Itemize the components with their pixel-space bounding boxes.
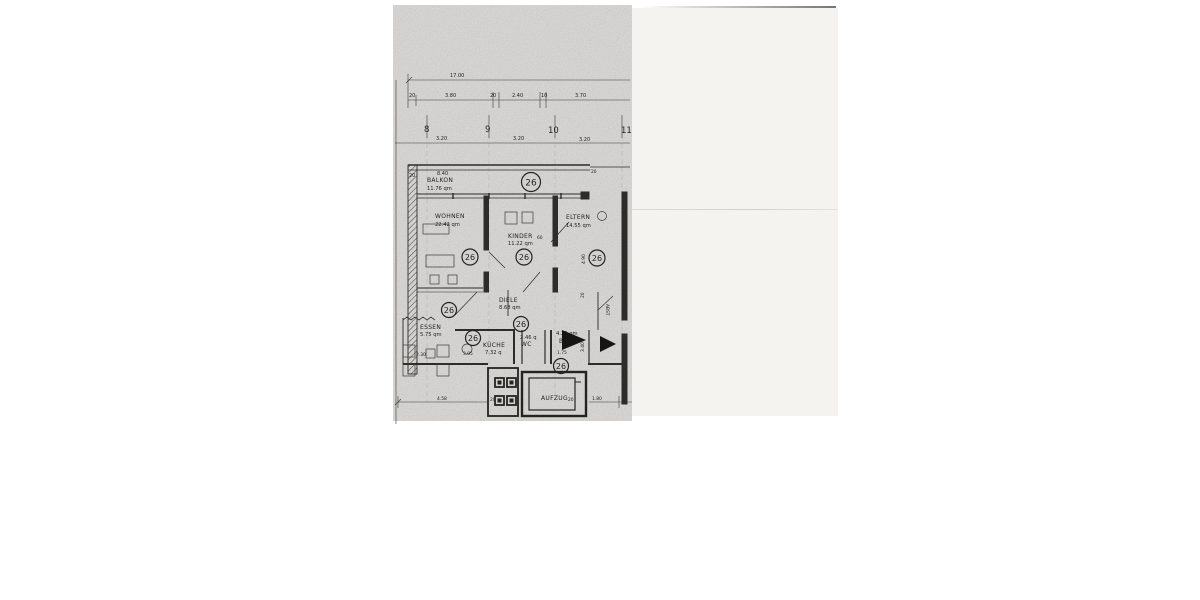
dim-bay-1: 3.20 xyxy=(436,136,447,142)
entrance-arrow-icon xyxy=(600,336,616,352)
room-area-eltern: 14.55 qm xyxy=(566,223,591,229)
lamp-icon xyxy=(598,212,607,221)
dim-bay-2: 3.20 xyxy=(513,136,524,142)
dim-20-b: 20 xyxy=(490,93,496,99)
unit-number-badge: 26 xyxy=(592,254,602,263)
unit-number-badge: 26 xyxy=(516,320,526,329)
unit-number-badge: 26 xyxy=(525,179,537,189)
dim-20-a: 20 xyxy=(409,93,415,99)
dim-total-width: 17.00 xyxy=(450,73,464,79)
dim-20-d: 20 xyxy=(568,397,574,403)
blank-paper-area xyxy=(632,8,838,416)
scanned-floorplan-page: { "plan": { "unit_number": "26", "rooms"… xyxy=(0,0,1200,600)
paper-fold-line xyxy=(632,209,838,210)
dim-20-balcony: 20 xyxy=(409,173,415,179)
room-label-wohnen: WOHNEN xyxy=(435,213,465,220)
shaft-room xyxy=(488,368,518,416)
room-label-wc: WC xyxy=(521,341,532,348)
unit-number-badge: 26 xyxy=(444,306,454,315)
room-label-aufzug: AUFZUG xyxy=(541,395,568,402)
room-area-balkon: 11.76 qm xyxy=(427,186,452,192)
floorplan-drawing: 17.00 20 3.80 20 2.40 10 3.70 8 9 10 11 … xyxy=(393,52,632,432)
room-labels: 20 8.40 20 BALKON 11.76 qm WOHNEN 22.42 … xyxy=(409,169,610,402)
dim-essen-width: 2.30 xyxy=(416,352,426,358)
dim-60: 60 xyxy=(537,235,543,241)
room-area-essen: 5.75 qm xyxy=(420,332,442,338)
unit-number-badge: 26 xyxy=(556,362,566,371)
room-label-abst: ABST xyxy=(604,304,610,316)
dim-abst-depth: 3.40 xyxy=(580,342,586,352)
room-label-balkon: BALKON xyxy=(427,177,453,184)
room-label-eltern: ELTERN xyxy=(566,214,590,221)
room-label-kueche: KÜCHE xyxy=(483,342,505,349)
furniture xyxy=(403,212,607,377)
room-area-kinder: 11.22 qm xyxy=(508,241,533,247)
room-label-kinder: KINDER xyxy=(508,233,533,240)
dim-2-40: 2.40 xyxy=(512,93,523,99)
dim-3-70: 3.70 xyxy=(575,93,586,99)
grid-label-9: 9 xyxy=(485,125,490,135)
room-label-essen: ESSEN xyxy=(420,324,441,331)
dimension-chain-top xyxy=(395,74,630,424)
dim-3-80: 3.80 xyxy=(445,93,456,99)
room-area-kueche: 7.32 q xyxy=(485,350,502,356)
unit-number-badge: 26 xyxy=(468,334,478,343)
dim-bay-3: 3.20 xyxy=(579,137,590,143)
unit-number-badge: 26 xyxy=(465,253,475,262)
dim-10: 10 xyxy=(541,93,547,99)
room-area-wohnen: 22.42 qm xyxy=(435,222,460,228)
dim-30: 30 xyxy=(621,400,627,406)
dim-bad-width: 1.75 xyxy=(557,350,567,356)
dim-lift-width: 1.80 xyxy=(592,396,602,402)
unit-number-badge: 26 xyxy=(519,253,529,262)
grid-label-11: 11 xyxy=(621,126,632,136)
dim-eltern-depth: 4.90 xyxy=(581,254,587,264)
room-label-diele: DIELE xyxy=(499,297,518,304)
grid-label-8: 8 xyxy=(424,125,429,135)
paper-top-edge xyxy=(640,6,836,8)
dim-20-c: 20 xyxy=(490,397,496,403)
elevator xyxy=(488,368,586,416)
dim-20-e: 20 xyxy=(580,292,586,298)
room-area-diele: 8.68 qm xyxy=(499,305,521,311)
dim-20-right: 20 xyxy=(591,169,597,175)
grid-label-10: 10 xyxy=(548,126,559,136)
dim-bottom-left: 4.58 xyxy=(437,396,447,402)
dim-essen-depth: 3.05 xyxy=(463,351,473,357)
